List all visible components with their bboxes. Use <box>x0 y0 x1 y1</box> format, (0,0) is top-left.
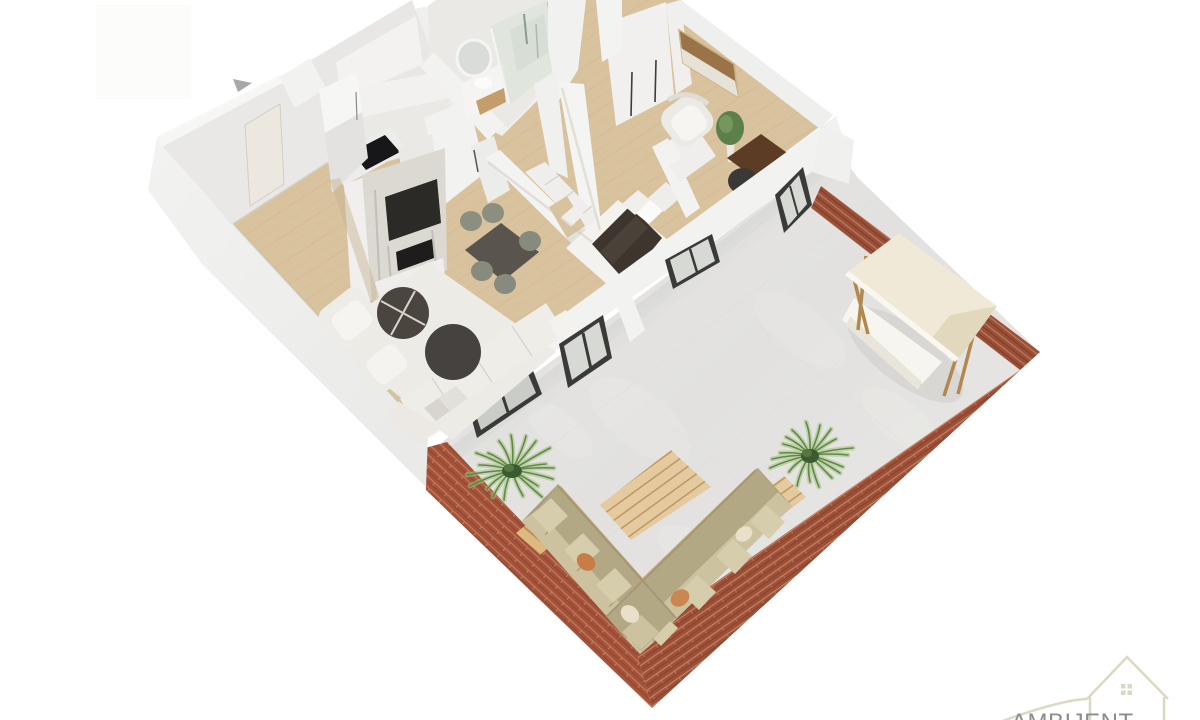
svg-text:AMBIJENT: AMBIJENT <box>1011 709 1134 720</box>
